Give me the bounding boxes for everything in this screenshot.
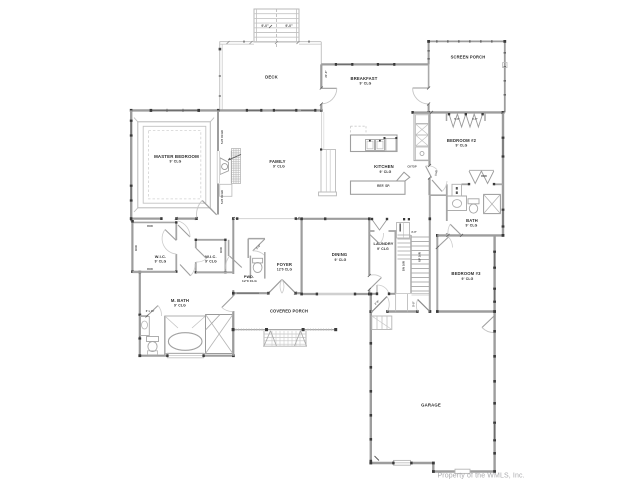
svg-text:9' CLG: 9' CLG (174, 304, 186, 308)
svg-text:KITCHEN: KITCHEN (374, 164, 394, 169)
svg-text:5'-0": 5'-0" (413, 300, 416, 306)
svg-text:9' CLG: 9' CLG (466, 224, 478, 228)
svg-text:9' CLG: 9' CLG (273, 164, 285, 168)
svg-text:COVERED PORCH: COVERED PORCH (270, 308, 308, 313)
svg-text:MASTER BEDROOM: MASTER BEDROOM (154, 154, 199, 159)
svg-text:ROD: ROD (147, 267, 153, 271)
svg-text:LAUNDRY: LAUNDRY (374, 241, 394, 246)
svg-text:9' CLG: 9' CLG (380, 170, 392, 174)
svg-text:21'-0": 21'-0" (324, 70, 328, 78)
svg-text:9' CLG: 9' CLG (462, 277, 474, 281)
svg-text:FAMILY: FAMILY (269, 159, 285, 164)
svg-text:9' CLG: 9' CLG (377, 247, 389, 251)
svg-text:12'0 CLG: 12'0 CLG (242, 279, 257, 283)
svg-text:9' CLG: 9' CLG (170, 159, 182, 163)
svg-text:3'-0": 3'-0" (411, 230, 417, 234)
svg-text:9' CLG: 9' CLG (205, 259, 217, 263)
svg-text:W.I.C.: W.I.C. (155, 254, 167, 259)
svg-text:5'-0": 5'-0" (454, 117, 460, 121)
svg-text:DINING: DINING (332, 252, 348, 257)
svg-text:UP 16R: UP 16R (418, 252, 422, 262)
svg-text:9' CLG: 9' CLG (335, 258, 347, 262)
svg-text:W.I.C.: W.I.C. (205, 254, 217, 259)
svg-text:5.25 CR HD: 5.25 CR HD (220, 130, 224, 144)
svg-text:5'-0": 5'-0" (472, 117, 478, 121)
svg-text:9'-0": 9'-0" (261, 24, 269, 28)
svg-text:9' CLG: 9' CLG (456, 144, 468, 148)
svg-text:BREAKFAST: BREAKFAST (351, 76, 378, 81)
svg-text:12'0 CLG: 12'0 CLG (277, 268, 293, 272)
svg-text:M. BATH: M. BATH (171, 298, 189, 303)
svg-text:ROD: ROD (134, 245, 138, 251)
svg-text:ROD: ROD (481, 174, 487, 178)
svg-text:REF. SP.: REF. SP. (377, 184, 390, 188)
svg-text:ROD: ROD (147, 224, 153, 228)
svg-text:6' x 10': 6' x 10' (146, 309, 155, 313)
svg-text:BEDROOM #2: BEDROOM #2 (447, 138, 477, 143)
svg-text:GARAGE: GARAGE (421, 403, 441, 408)
svg-text:5.25 CR HD: 5.25 CR HD (220, 190, 224, 204)
svg-text:FOYER: FOYER (277, 262, 292, 267)
svg-text:SCREEN PORCH: SCREEN PORCH (451, 54, 486, 59)
svg-text:CKTOP: CKTOP (407, 165, 417, 169)
svg-text:ROD: ROD (219, 247, 223, 253)
svg-text:9'-0": 9'-0" (285, 24, 293, 28)
svg-text:9' CLG: 9' CLG (360, 81, 372, 85)
svg-text:BATH: BATH (466, 218, 478, 223)
svg-text:Property of the WMLS, Inc.: Property of the WMLS, Inc. (438, 473, 525, 480)
svg-text:DN 16R: DN 16R (402, 261, 406, 271)
svg-text:DECK: DECK (265, 74, 279, 79)
svg-text:9' CLG: 9' CLG (155, 259, 167, 263)
svg-text:BEDROOM #3: BEDROOM #3 (451, 271, 481, 276)
